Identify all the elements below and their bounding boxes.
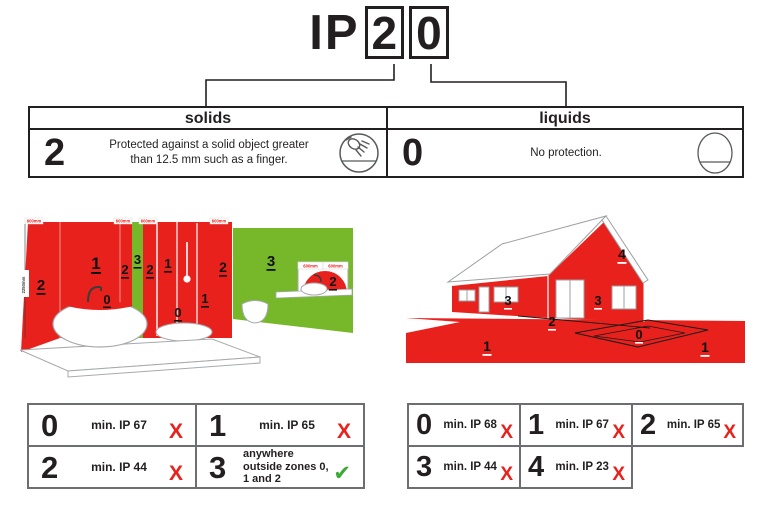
svg-text:600mm: 600mm <box>141 219 156 224</box>
ip20-infographic: IP 2 0 solids 2 Protected against a soli… <box>0 0 758 505</box>
svg-text:3: 3 <box>134 252 141 267</box>
requirement-text: anywhere outside zones 0, 1 and 2 <box>237 448 333 486</box>
svg-text:0: 0 <box>103 292 110 307</box>
liquids-description: No protection. <box>444 146 688 161</box>
svg-text:1: 1 <box>483 338 491 354</box>
basin-dim-label: 600mm <box>328 263 343 268</box>
svg-text:2: 2 <box>219 259 227 275</box>
finger-probe-icon <box>332 131 386 175</box>
zone-number: 3 <box>416 453 440 482</box>
ground-zone1 <box>406 318 745 363</box>
bathroom-zones-diagram: 600mm 600mm 600mm 600mm 600mm 600mm 2250… <box>12 212 368 378</box>
bathroom-requirements-table: 0 min. IP 67 X 1 min. IP 65 X 2 min. IP … <box>27 403 365 489</box>
zone-number: 1 <box>528 411 552 440</box>
svg-text:2: 2 <box>37 277 45 294</box>
req-cell-zone2: 2 min. IP 44 X <box>27 445 197 489</box>
solids-header: solids <box>30 108 386 130</box>
svg-text:600mm: 600mm <box>212 219 227 224</box>
fail-mark: X <box>500 423 513 442</box>
requirement-text: min. IP 68 <box>440 419 500 431</box>
zone-number: 2 <box>640 411 664 440</box>
svg-text:4: 4 <box>618 246 626 262</box>
fail-mark: X <box>169 421 183 442</box>
zone-number: 1 <box>209 410 237 441</box>
req-cell-zone1: 1 min. IP 67 X <box>519 403 633 447</box>
svg-text:2: 2 <box>146 262 153 277</box>
svg-text:0: 0 <box>635 327 642 342</box>
fail-mark: X <box>612 465 625 484</box>
pass-mark: ✔ <box>333 463 351 484</box>
requirement-text: min. IP 44 <box>440 461 500 473</box>
solids-column: solids 2 Protected against a solid objec… <box>30 108 386 176</box>
basin-dim-label: 600mm <box>303 263 318 268</box>
shower-tray <box>156 323 212 341</box>
page-title: IP 2 0 <box>0 6 758 59</box>
title-ip-prefix: IP <box>309 7 359 59</box>
fail-mark: X <box>337 421 351 442</box>
no-water-protection-icon <box>688 131 742 175</box>
svg-text:3: 3 <box>594 293 601 308</box>
requirement-text: min. IP 65 <box>664 419 723 431</box>
wash-basin-icon <box>301 283 327 295</box>
outdoor-requirements-table: 0 min. IP 68 X 1 min. IP 67 X 2 min. IP … <box>407 403 744 489</box>
svg-text:2: 2 <box>121 262 128 277</box>
requirement-text: min. IP 65 <box>237 418 337 432</box>
fail-mark: X <box>723 423 736 442</box>
fail-mark: X <box>169 463 183 484</box>
req-cell-zone0: 0 min. IP 68 X <box>407 403 521 447</box>
requirement-text: min. IP 44 <box>69 460 169 474</box>
svg-text:2: 2 <box>329 274 336 289</box>
req-cell-zone2: 2 min. IP 65 X <box>631 403 744 447</box>
liquids-column: liquids 0 No protection. <box>386 108 742 176</box>
svg-text:0: 0 <box>174 305 181 320</box>
requirement-text: min. IP 23 <box>552 461 612 473</box>
svg-text:1: 1 <box>201 291 208 306</box>
svg-text:600mm: 600mm <box>27 219 42 224</box>
connector-lines <box>0 62 758 106</box>
svg-text:1: 1 <box>701 339 709 355</box>
solids-rating: 2 <box>30 134 86 172</box>
req-cell-zone4: 4 min. IP 23 X <box>519 445 633 489</box>
req-cell-zone3: 3 min. IP 44 X <box>407 445 521 489</box>
fail-mark: X <box>500 465 513 484</box>
liquids-rating: 0 <box>388 134 444 172</box>
zone-number: 0 <box>41 410 69 441</box>
req-cell-zone1: 1 min. IP 65 X <box>195 403 365 447</box>
req-cell-zone0: 0 min. IP 67 X <box>27 403 197 447</box>
req-cell-zone3: 3 anywhere outside zones 0, 1 and 2 ✔ <box>195 445 365 489</box>
height-dim-label: 2250mm <box>21 276 26 293</box>
zone-number: 2 <box>41 452 69 483</box>
fail-mark: X <box>612 423 625 442</box>
zone-number: 0 <box>416 411 440 440</box>
ip-definition-table: solids 2 Protected against a solid objec… <box>28 106 744 178</box>
svg-text:1: 1 <box>164 256 171 271</box>
requirement-text: min. IP 67 <box>69 418 169 432</box>
svg-text:600mm: 600mm <box>116 219 131 224</box>
svg-text:3: 3 <box>504 293 511 308</box>
title-solids-digit: 2 <box>365 6 405 59</box>
requirement-text: min. IP 67 <box>552 419 612 431</box>
zone-number: 3 <box>209 452 237 483</box>
svg-text:2: 2 <box>548 314 555 329</box>
shower-head <box>183 275 190 282</box>
svg-text:3: 3 <box>267 253 275 270</box>
solids-description: Protected against a solid object greater… <box>93 138 325 168</box>
liquids-header: liquids <box>388 108 742 130</box>
svg-text:1: 1 <box>91 254 100 273</box>
zone-number: 4 <box>528 453 552 482</box>
house-zones-diagram: 4 3 3 2 0 1 1 <box>398 206 750 374</box>
title-liquids-digit: 0 <box>409 6 449 59</box>
